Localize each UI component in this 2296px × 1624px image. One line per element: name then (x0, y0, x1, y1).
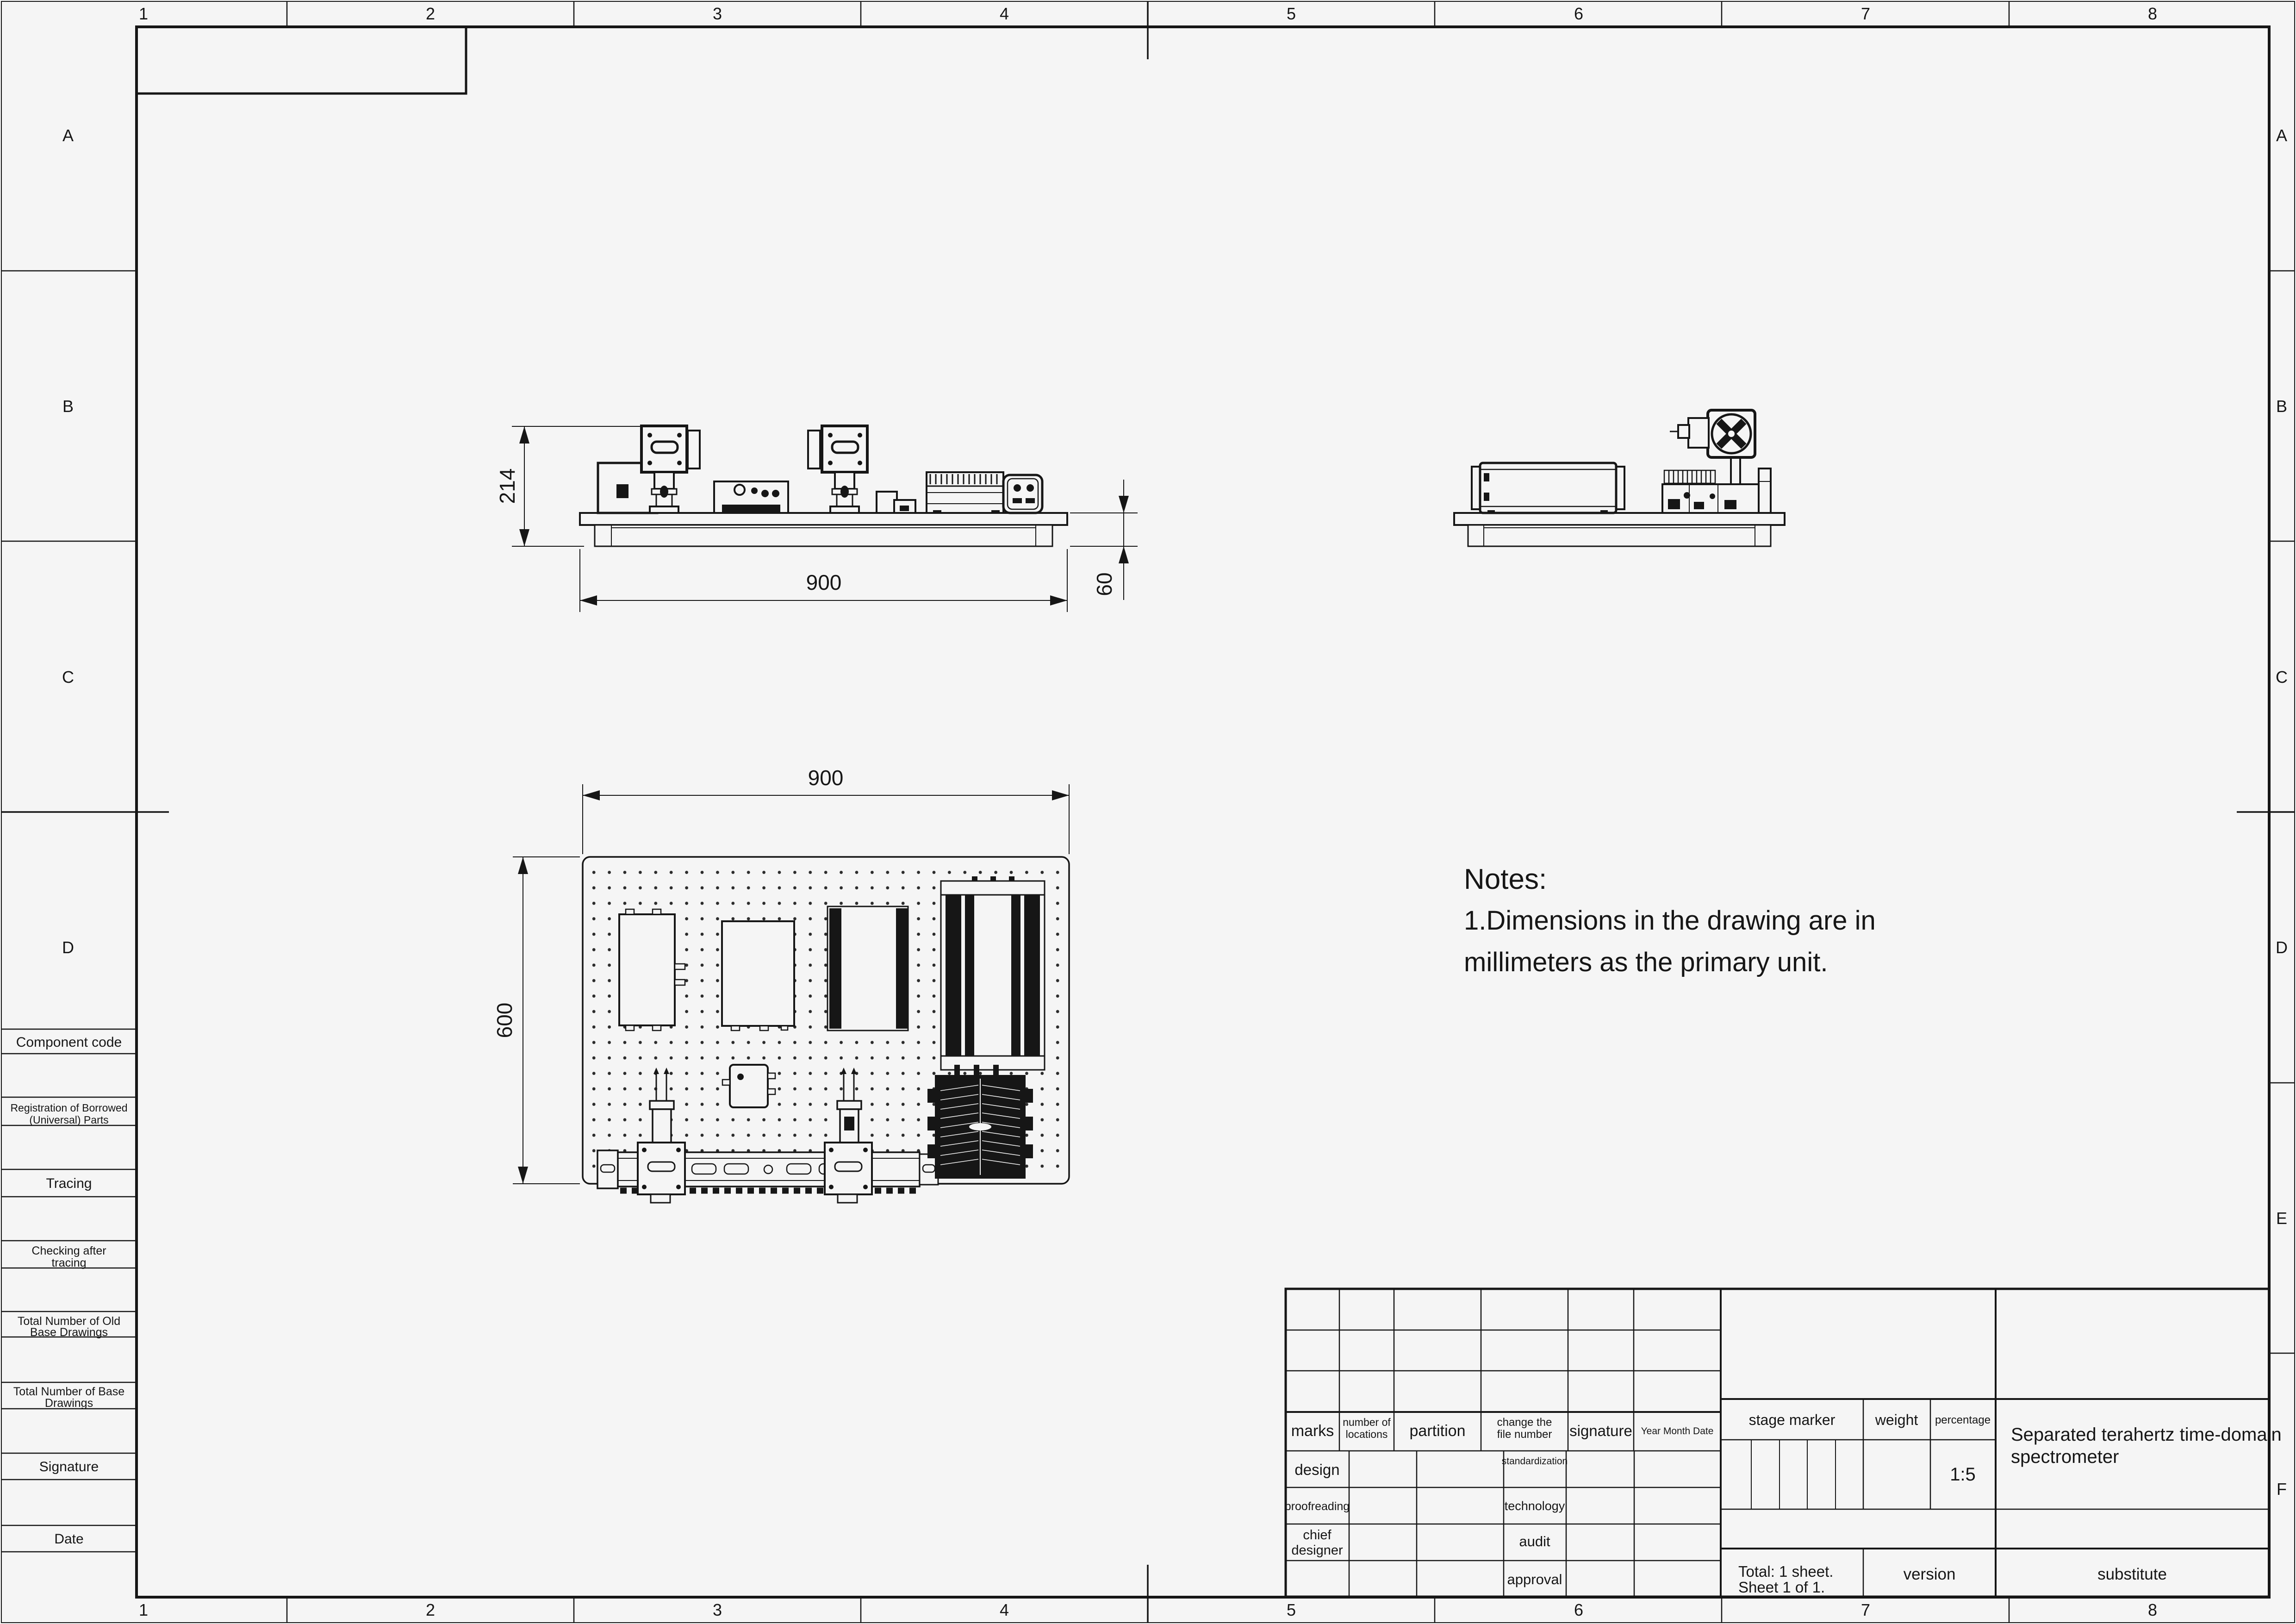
top-view: 900 600 (492, 766, 1069, 1203)
sheet-count: Total: 1 sheet. (1738, 1563, 1833, 1580)
zone-col-label: 5 (1287, 1600, 1296, 1619)
checking-after-tracing-label: tracing (51, 1256, 86, 1269)
registration-label: (Universal) Parts (29, 1114, 108, 1126)
dim-text-900-plan: 900 (808, 766, 844, 790)
locations-header: locations (1346, 1428, 1388, 1440)
zone-row-label: A (2276, 126, 2287, 145)
zone-row-label: E (2276, 1209, 2287, 1228)
zone-col-label: 7 (1861, 4, 1870, 23)
chief-designer-label: designer (1291, 1543, 1343, 1558)
zone-col-label: 4 (1000, 1600, 1009, 1619)
zone-col-label: 2 (426, 4, 435, 23)
date-label: Date (54, 1531, 83, 1547)
approval-label: approval (1507, 1571, 1562, 1587)
zone-col-label: 1 (139, 1600, 148, 1619)
chief-designer-label: chief (1303, 1528, 1332, 1543)
locations-header: number of (1343, 1416, 1391, 1428)
partition-header: partition (1410, 1422, 1466, 1440)
zone-row-label: D (62, 938, 74, 957)
component-code-label: Component code (16, 1035, 122, 1050)
zone-col-label: 3 (713, 4, 722, 23)
zone-col-label: 6 (1574, 1600, 1583, 1619)
zone-row-label: B (62, 397, 74, 416)
zone-col-label: 2 (426, 1600, 435, 1619)
old-base-drawings-label: Base Drawings (30, 1326, 108, 1339)
dim-text-900: 900 (806, 570, 842, 594)
dim-text-600: 600 (492, 1003, 516, 1038)
signature-label: Signature (39, 1459, 99, 1474)
scale-value: 1:5 (1950, 1464, 1976, 1485)
zone-col-label: 3 (713, 1600, 722, 1619)
notes-block: Notes: 1.Dimensions in the drawing are i… (1464, 863, 1876, 977)
substitute-label: substitute (2097, 1565, 2167, 1583)
proofreading-label: proofreading (1285, 1500, 1350, 1513)
zone-col-label: 1 (139, 4, 148, 23)
top-left-register-box (137, 27, 466, 94)
signature-header: signature (1569, 1422, 1632, 1439)
checking-after-tracing-label: Checking after (31, 1244, 106, 1257)
change-file-number-header: change the (1497, 1416, 1552, 1429)
version-label: version (1904, 1565, 1956, 1583)
zone-labels: 1 2 3 4 5 6 7 8 1 2 3 4 5 6 7 8 A B C D … (62, 4, 2288, 1619)
zone-col-label: 4 (1000, 4, 1009, 23)
notes-line: 1.Dimensions in the drawing are in (1464, 906, 1876, 936)
registration-label: Registration of Borrowed (10, 1102, 127, 1114)
audit-label: audit (1519, 1533, 1550, 1549)
title-block: marks number of locations partition chan… (1285, 1289, 2282, 1597)
zone-col-label: 5 (1287, 4, 1296, 23)
design-label: design (1294, 1461, 1339, 1478)
dim-plan-depth: 600 (492, 857, 580, 1184)
zone-col-label: 7 (1861, 1600, 1870, 1619)
change-file-number-header: file number (1497, 1428, 1552, 1441)
zone-col-label: 8 (2148, 4, 2157, 23)
technology-label: technology (1505, 1499, 1565, 1513)
zone-row-label: C (62, 668, 74, 687)
sheet-count: Sheet 1 of 1. (1738, 1579, 1825, 1596)
zone-row-label: F (2277, 1480, 2287, 1499)
zone-row-label: C (2276, 668, 2288, 687)
base-drawings-label: Total Number of Base (13, 1385, 124, 1398)
stage-marker-header: stage marker (1749, 1412, 1836, 1428)
left-margin-table: Component code Registration of Borrowed … (1, 1029, 137, 1552)
drawing-title: Separated terahertz time-domain (2011, 1424, 2282, 1445)
zone-row-label: A (62, 126, 74, 145)
drawing-canvas: 1 2 3 4 5 6 7 8 1 2 3 4 5 6 7 8 A B C D … (0, 0, 2296, 1624)
dim-text-214: 214 (495, 468, 519, 504)
base-drawings-label: Drawings (45, 1397, 93, 1410)
dim-base-height: 60 (1070, 480, 1138, 600)
marks-header: marks (1291, 1422, 1334, 1440)
sheet-frame (1, 1, 2295, 1623)
zone-col-label: 8 (2148, 1600, 2157, 1619)
weight-header: weight (1875, 1412, 1918, 1428)
side-view (1454, 410, 1785, 546)
dim-front-width: 900 (580, 549, 1067, 612)
dim-plan-width: 900 (583, 766, 1069, 854)
front-view: 214 900 60 (495, 426, 1138, 612)
zone-row-label: D (2276, 938, 2288, 957)
notes-heading: Notes: (1464, 863, 1547, 895)
notes-line: millimeters as the primary unit. (1464, 947, 1828, 977)
percentage-header: percentage (1935, 1414, 1991, 1426)
drawing-sheet: 1 2 3 4 5 6 7 8 1 2 3 4 5 6 7 8 A B C D … (0, 0, 2296, 1624)
drawing-title: spectrometer (2011, 1447, 2119, 1467)
zone-row-label: B (2276, 397, 2287, 416)
standardization-label: standardization (1502, 1456, 1568, 1467)
tracing-label: Tracing (46, 1176, 92, 1191)
heatsink-component (927, 1065, 1033, 1179)
year-month-date-header: Year Month Date (1641, 1426, 1714, 1437)
zone-col-label: 6 (1574, 4, 1583, 23)
dim-text-60: 60 (1092, 572, 1116, 596)
